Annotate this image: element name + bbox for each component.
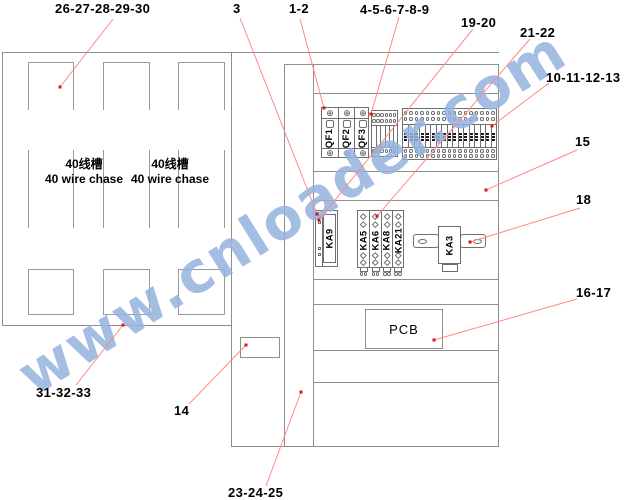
diagram-canvas: 40线槽 40 wire chase 40线槽 40 wire chase ⊕Q…: [0, 0, 635, 500]
terminal-screw-icon: [409, 149, 413, 153]
strip-line: [403, 147, 496, 148]
wire-chase-label-left: 40线槽 40 wire chase: [38, 156, 130, 187]
terminal-id-mark: [404, 133, 407, 141]
pcb-board: PCB: [365, 309, 443, 349]
breaker-column: ⊕QF3⊕: [354, 108, 371, 157]
callout-label: 3: [233, 1, 241, 16]
relay-contact-icon: [384, 259, 390, 265]
terminal-screw-icon: [448, 154, 452, 158]
relay-column: KA5: [358, 211, 369, 267]
screw-terminal-icon: ⊕: [355, 149, 371, 158]
panel-divider: [314, 304, 499, 305]
wire-chase-label-cn: 40线槽: [38, 156, 130, 172]
terminal-screw-icon: [420, 111, 424, 115]
terminal-screw-icon: [409, 117, 413, 121]
relay-contact-icon: [372, 252, 378, 258]
relay-ka9-label: KA9: [325, 229, 336, 249]
terminal-screw-icon: [458, 117, 462, 121]
panel-left-column-divider: [313, 65, 314, 446]
callout-label: 18: [576, 192, 591, 207]
terminal-screw-icon: [464, 111, 468, 115]
terminal-screw-icon: [475, 111, 479, 115]
terminal-screw-icon: [389, 113, 393, 117]
strip-cell-line: [393, 125, 394, 147]
panel-divider: [314, 93, 499, 94]
terminal-screw-icon: [431, 117, 435, 121]
terminal-screw-icon: [458, 149, 462, 153]
relay-ka3-left-wing: [413, 234, 439, 248]
callout-label: 4-5-6-7-8-9: [360, 2, 429, 17]
terminal-screw-icon: [385, 113, 389, 117]
relay-ka9-label-wrap: KA9: [322, 211, 338, 266]
breaker-window: [359, 120, 367, 128]
breaker-label: QF3: [357, 128, 368, 147]
relay-foot-screw-icon: [387, 272, 391, 276]
callout-label: 15: [575, 134, 590, 149]
terminal-id-mark: [481, 133, 484, 141]
relay-pin: [318, 253, 321, 256]
terminal-screw-icon: [458, 111, 462, 115]
terminal-screw-icon: [453, 154, 457, 158]
callout-label: 31-32-33: [36, 385, 91, 400]
terminal-screw-icon: [475, 154, 479, 158]
terminal-screw-icon: [415, 111, 419, 115]
breaker-window: [343, 120, 351, 128]
terminal-screw-icon: [469, 149, 473, 153]
terminal-screw-icon: [464, 149, 468, 153]
small-junction-box: [240, 337, 280, 358]
relay-label-wrap: KA21: [393, 227, 404, 253]
callout-leader-line: [492, 83, 549, 126]
terminal-screw-icon: [380, 149, 384, 153]
strip-cell-line: [385, 125, 386, 147]
relay-contact-icon: [360, 259, 366, 265]
relay-ka3-label-wrap: KA3: [439, 227, 460, 263]
terminal-id-mark: [486, 133, 489, 141]
breaker-label: QF2: [341, 128, 352, 147]
strip-cell-line: [389, 125, 390, 147]
terminal-id-mark: [459, 133, 462, 141]
callout-label: 21-22: [520, 25, 555, 40]
terminal-screw-icon: [491, 149, 495, 153]
screw-terminal-icon: ⊕: [322, 149, 338, 158]
terminal-screw-icon: [426, 117, 430, 121]
breaker-label-wrap: QF3: [355, 128, 370, 148]
terminal-screw-icon: [491, 154, 495, 158]
terminal-screw-icon: [480, 149, 484, 153]
breaker-label-wrap: QF2: [339, 128, 354, 148]
terminal-screw-icon: [389, 149, 393, 153]
wire-chase-label-en: 40 wire chase: [38, 172, 130, 187]
terminal-screw-icon: [372, 113, 376, 117]
terminal-strip-large: [402, 108, 497, 160]
relay-contact-icon: [395, 213, 401, 219]
callout-label: 1-2: [289, 1, 309, 16]
terminal-screw-icon: [442, 111, 446, 115]
terminal-screw-icon: [393, 113, 397, 117]
relay-foot-screw-icon: [360, 272, 364, 276]
terminal-screw-icon: [486, 117, 490, 121]
callout-label: 14: [174, 403, 189, 418]
terminal-id-mark: [410, 133, 413, 141]
wire-chase-slot: [178, 62, 225, 110]
terminal-screw-icon: [420, 117, 424, 121]
panel-divider: [314, 200, 499, 201]
relay-pin: [318, 247, 321, 250]
relay-pin: [318, 221, 321, 224]
callout-leader-line: [189, 345, 246, 404]
relay-foot-screw-icon: [376, 272, 380, 276]
terminal-screw-icon: [404, 149, 408, 153]
relay-ka9: KA9: [315, 210, 338, 267]
breaker-window: [326, 120, 334, 128]
wire-chase-label-cn: 40线槽: [124, 156, 216, 172]
terminal-screw-icon: [415, 154, 419, 158]
terminal-screw-icon: [491, 111, 495, 115]
terminal-screw-icon: [380, 113, 384, 117]
relay-ka3-mount-hole: [473, 239, 482, 244]
terminal-id-mark: [432, 133, 435, 141]
relay-contact-icon: [360, 213, 366, 219]
terminal-screw-icon: [491, 117, 495, 121]
terminal-screw-icon: [376, 149, 380, 153]
breaker-column: ⊕QF1⊕: [322, 108, 338, 157]
wire-chase-slot: [28, 269, 74, 315]
terminal-screw-icon: [437, 154, 441, 158]
terminal-screw-icon: [372, 149, 376, 153]
panel-divider: [314, 279, 499, 280]
terminal-screw-icon: [442, 149, 446, 153]
wire-chase-slot: [103, 269, 150, 315]
wire-chase-label-en: 40 wire chase: [124, 172, 216, 187]
terminal-screw-icon: [448, 117, 452, 121]
terminal-screw-icon: [437, 111, 441, 115]
callout-label: 10-11-12-13: [546, 70, 621, 85]
terminal-screw-icon: [426, 111, 430, 115]
terminal-id-mark: [464, 133, 467, 141]
relay-ka3-right-wing: [460, 234, 486, 248]
terminal-screw-icon: [409, 154, 413, 158]
terminal-screw-icon: [420, 149, 424, 153]
callout-leader-line: [76, 325, 123, 385]
terminal-screw-icon: [437, 149, 441, 153]
terminal-id-mark: [437, 133, 440, 141]
terminal-screw-icon: [393, 119, 397, 123]
terminal-screw-icon: [464, 154, 468, 158]
relay-label: KA21: [393, 227, 404, 253]
callout-leader-line: [486, 150, 577, 190]
wire-chase-label-right: 40线槽 40 wire chase: [124, 156, 216, 187]
terminal-screw-icon: [415, 149, 419, 153]
relay-contact-icon: [384, 252, 390, 258]
callout-label: 26-27-28-29-30: [55, 1, 150, 16]
terminal-screw-icon: [415, 117, 419, 121]
relay-contact-icon: [395, 259, 401, 265]
relay-ka3-label: KA3: [444, 235, 455, 255]
panel-divider: [314, 171, 499, 172]
terminal-screw-icon: [431, 149, 435, 153]
relay-foot-screw-icon: [372, 272, 376, 276]
relay-label-wrap: KA5: [358, 227, 369, 253]
strip-cell-line: [376, 125, 377, 147]
screw-terminal-icon: ⊕: [339, 109, 355, 118]
relay-foot-screw-icon: [364, 272, 368, 276]
terminal-screw-icon: [486, 154, 490, 158]
screw-terminal-icon: ⊕: [339, 149, 355, 158]
relay-pin: [318, 215, 321, 218]
relay-foot-screw-icon: [383, 272, 387, 276]
screw-terminal-icon: ⊕: [355, 109, 371, 118]
terminal-screw-icon: [469, 117, 473, 121]
terminal-screw-icon: [453, 111, 457, 115]
cabinet-left-wall-lower: [231, 326, 232, 446]
terminal-screw-icon: [475, 149, 479, 153]
wire-chase-slot: [28, 62, 74, 110]
relay-bank: KA5KA6KA8KA21: [357, 210, 404, 268]
terminal-screw-icon: [486, 111, 490, 115]
terminal-screw-icon: [385, 149, 389, 153]
screw-terminal-icon: ⊕: [322, 109, 338, 118]
terminal-id-mark: [443, 133, 446, 141]
terminal-screw-icon: [393, 149, 397, 153]
terminal-screw-icon: [426, 149, 430, 153]
callout-label: 16-17: [576, 285, 611, 300]
terminal-screw-icon: [385, 119, 389, 123]
terminal-screw-icon: [469, 111, 473, 115]
terminal-screw-icon: [404, 154, 408, 158]
terminal-screw-icon: [426, 154, 430, 158]
panel-divider: [314, 350, 499, 351]
terminal-screw-icon: [453, 149, 457, 153]
breaker-label: QF1: [324, 128, 335, 147]
terminal-screw-icon: [453, 117, 457, 121]
terminal-id-mark: [492, 133, 495, 141]
wire-chase-slot: [178, 269, 225, 315]
terminal-id-mark: [426, 133, 429, 141]
terminal-screw-icon: [475, 117, 479, 121]
relay-ka3-mount-hole: [418, 239, 427, 244]
terminal-id-mark: [421, 133, 424, 141]
terminal-id-mark: [475, 133, 478, 141]
terminal-screw-icon: [448, 149, 452, 153]
wire-chase-slot: [103, 62, 150, 110]
callout-label: 19-20: [461, 15, 496, 30]
pcb-label: PCB: [366, 322, 442, 337]
relay-contact-icon: [360, 252, 366, 258]
terminal-screw-icon: [480, 111, 484, 115]
callout-label: 23-24-25: [228, 485, 283, 500]
terminal-screw-icon: [372, 119, 376, 123]
breaker-block: ⊕QF1⊕⊕QF2⊕⊕QF3⊕: [321, 107, 369, 158]
breaker-column: ⊕QF2⊕: [338, 108, 355, 157]
terminal-screw-icon: [448, 111, 452, 115]
terminal-screw-icon: [404, 117, 408, 121]
relay-contact-icon: [372, 259, 378, 265]
terminal-id-mark: [448, 133, 451, 141]
terminal-screw-icon: [376, 113, 380, 117]
relay-foot-screw-icon: [394, 272, 398, 276]
terminal-screw-icon: [442, 154, 446, 158]
terminal-screw-icon: [464, 117, 468, 121]
relay-column: KA21: [392, 211, 404, 267]
terminal-screw-icon: [458, 154, 462, 158]
terminal-screw-icon: [480, 117, 484, 121]
terminal-id-mark: [453, 133, 456, 141]
terminal-screw-icon: [442, 117, 446, 121]
relay-ka3-body: KA3: [438, 226, 461, 264]
breaker-label-wrap: QF1: [322, 128, 337, 148]
strip-cell-line: [380, 125, 381, 147]
terminal-screw-icon: [431, 111, 435, 115]
relay-ka3-foot: [442, 264, 458, 272]
panel-divider: [314, 382, 499, 383]
terminal-screw-icon: [480, 154, 484, 158]
relay-contact-icon: [384, 213, 390, 219]
strip-line: [372, 147, 397, 148]
relay-contact-icon: [372, 213, 378, 219]
terminal-screw-icon: [380, 119, 384, 123]
terminal-screw-icon: [404, 111, 408, 115]
terminal-id-mark: [470, 133, 473, 141]
strip-line: [403, 124, 496, 125]
terminal-screw-icon: [420, 154, 424, 158]
terminal-id-mark: [415, 133, 418, 141]
terminal-screw-icon: [437, 117, 441, 121]
terminal-screw-icon: [469, 154, 473, 158]
terminal-strip-small: [371, 110, 398, 157]
terminal-screw-icon: [376, 119, 380, 123]
relay-label: KA5: [358, 230, 369, 250]
terminal-screw-icon: [486, 149, 490, 153]
relay-foot-screw-icon: [398, 272, 402, 276]
terminal-screw-icon: [409, 111, 413, 115]
terminal-screw-icon: [389, 119, 393, 123]
terminal-screw-icon: [431, 154, 435, 158]
